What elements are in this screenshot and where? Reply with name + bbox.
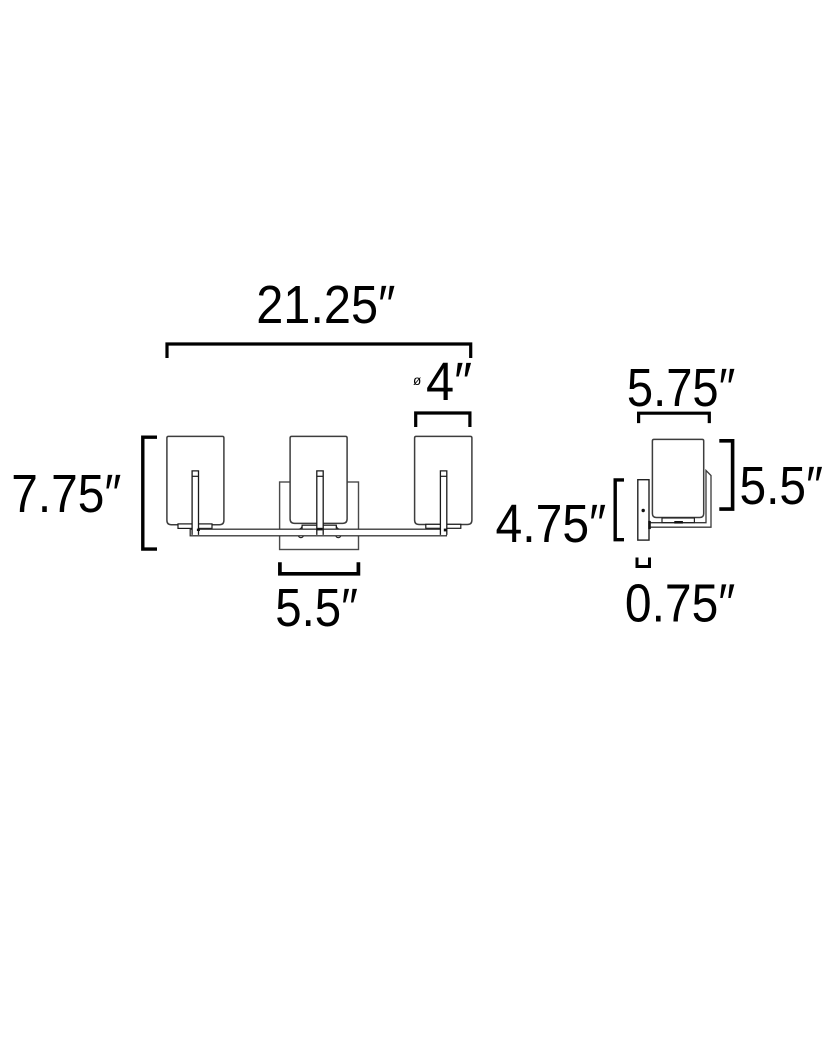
svg-text:ø: ø — [413, 373, 421, 388]
svg-text:0.75″: 0.75″ — [625, 575, 735, 634]
svg-text:4.75″: 4.75″ — [496, 495, 607, 554]
svg-text:5.5″: 5.5″ — [275, 579, 358, 638]
svg-text:5.75″: 5.75″ — [627, 359, 735, 418]
svg-text:5.5″: 5.5″ — [739, 457, 823, 516]
svg-text:21.25″: 21.25″ — [256, 276, 395, 335]
svg-text:7.75″: 7.75″ — [11, 465, 121, 524]
svg-text:4″: 4″ — [426, 353, 472, 412]
